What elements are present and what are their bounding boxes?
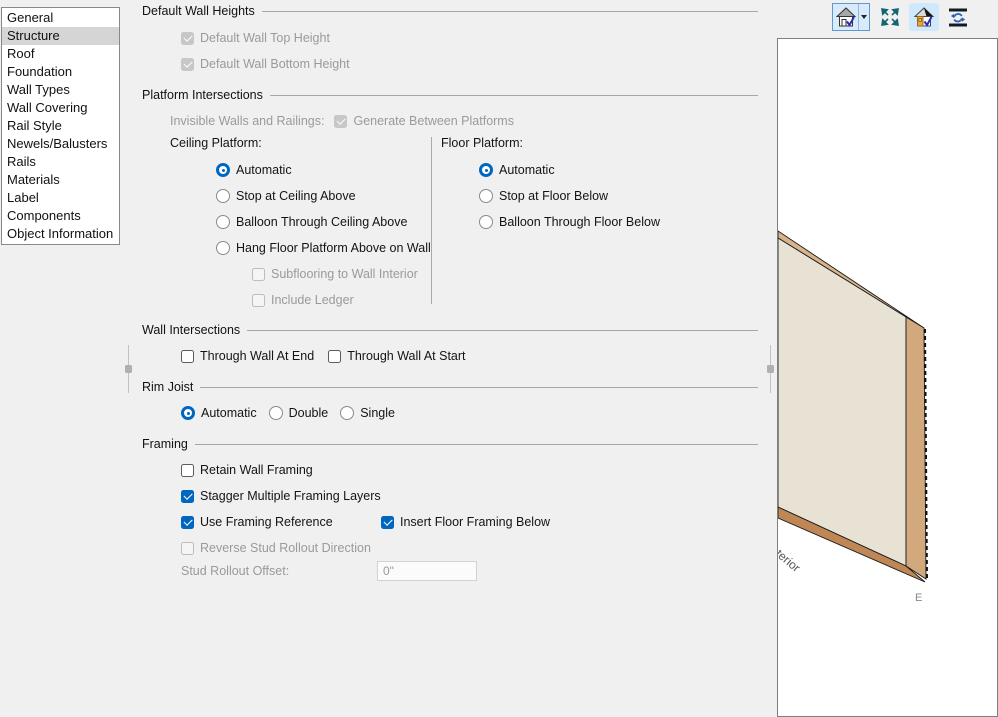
color-on-off-button[interactable] xyxy=(909,3,939,31)
section-title-platform-intersections: Platform Intersections xyxy=(142,88,263,102)
radio-rim-automatic[interactable] xyxy=(181,406,195,420)
dropdown-button[interactable] xyxy=(858,4,869,30)
checkbox-default-wall-top-height xyxy=(181,32,194,45)
auto-refresh-bars-icon xyxy=(946,5,970,29)
radio-rim-double[interactable] xyxy=(269,406,283,420)
preview-toolbar xyxy=(832,3,971,31)
radio-label: Automatic xyxy=(236,163,292,177)
radio-label: Stop at Ceiling Above xyxy=(236,189,356,203)
checkbox-label: Include Ledger xyxy=(271,293,354,307)
sidebar-item-foundation[interactable]: Foundation xyxy=(2,63,119,81)
radio-balloon-through-ceiling-above[interactable] xyxy=(216,215,230,229)
radio-label: Balloon Through Ceiling Above xyxy=(236,215,407,229)
checkbox-label: Insert Floor Framing Below xyxy=(400,515,550,529)
checkbox-use-framing-reference[interactable] xyxy=(181,516,194,529)
section-divider xyxy=(270,95,758,96)
section-title-wall-intersections: Wall Intersections xyxy=(142,323,240,337)
stud-rollout-offset-label: Stud Rollout Offset: xyxy=(181,564,289,578)
stud-rollout-offset-field xyxy=(377,561,477,581)
section-title-default-wall-heights: Default Wall Heights xyxy=(142,4,255,18)
checkbox-label: Reverse Stud Rollout Direction xyxy=(200,541,371,555)
radio-ceiling-automatic[interactable] xyxy=(216,163,230,177)
splitter-grip-icon[interactable] xyxy=(767,365,774,373)
radio-balloon-through-floor-below[interactable] xyxy=(479,215,493,229)
checkbox-label: Default Wall Top Height xyxy=(200,31,330,45)
sidebar-item-wall-covering[interactable]: Wall Covering xyxy=(2,99,119,117)
checkbox-label: Default Wall Bottom Height xyxy=(200,57,350,71)
auto-rebuild-button[interactable] xyxy=(944,4,971,30)
wall-specification-dialog: { "sidebar": { "selected_item": "Structu… xyxy=(0,0,998,717)
sidebar-item-components[interactable]: Components xyxy=(2,207,119,225)
sidebar-item-rail-style[interactable]: Rail Style xyxy=(2,117,119,135)
checkbox-subflooring-to-wall-interior xyxy=(252,268,265,281)
checkbox-label: Retain Wall Framing xyxy=(200,463,313,477)
sidebar-item-general[interactable]: General xyxy=(2,9,119,27)
checkbox-include-ledger xyxy=(252,294,265,307)
house-materials-check-icon xyxy=(913,6,935,28)
radio-label: Single xyxy=(360,406,395,420)
checkbox-stagger-multiple-framing-layers[interactable] xyxy=(181,490,194,503)
radio-label: Double xyxy=(289,406,329,420)
radio-label: Automatic xyxy=(499,163,555,177)
section-divider xyxy=(247,330,758,331)
checkbox-label: Generate Between Platforms xyxy=(353,114,514,128)
standard-view-split-button[interactable] xyxy=(832,3,870,31)
section-divider xyxy=(200,387,758,388)
sidebar-item-label[interactable]: Label xyxy=(2,189,119,207)
sidebar-item-roof[interactable]: Roof xyxy=(2,45,119,63)
wall-preview-drawing: terior E xyxy=(778,39,997,716)
interior-label: terior xyxy=(778,547,803,575)
checkbox-through-wall-at-end[interactable] xyxy=(181,350,194,363)
sidebar-item-wall-types[interactable]: Wall Types xyxy=(2,81,119,99)
section-title-framing: Framing xyxy=(142,437,188,451)
checkbox-insert-floor-framing-below[interactable] xyxy=(381,516,394,529)
radio-label: Hang Floor Platform Above on Wall xyxy=(236,241,431,255)
radio-label: Balloon Through Floor Below xyxy=(499,215,660,229)
structure-panel: Default Wall Heights Default Wall Top He… xyxy=(130,0,778,717)
checkbox-generate-between-platforms xyxy=(334,115,347,128)
invisible-walls-label: Invisible Walls and Railings: xyxy=(170,114,324,128)
checkbox-label: Stagger Multiple Framing Layers xyxy=(200,489,381,503)
checkbox-label: Use Framing Reference xyxy=(200,515,333,529)
wall-end-layer xyxy=(906,317,926,579)
sidebar-item-newels-balusters[interactable]: Newels/Balusters xyxy=(2,135,119,153)
wall-end-label: E xyxy=(915,592,922,604)
floor-platform-title: Floor Platform: xyxy=(441,136,523,150)
right-pane-splitter[interactable] xyxy=(767,345,774,393)
sidebar-item-object-information[interactable]: Object Information xyxy=(2,225,119,243)
checkbox-through-wall-at-start[interactable] xyxy=(328,350,341,363)
category-list: General Structure Roof Foundation Wall T… xyxy=(1,7,120,245)
checkbox-retain-wall-framing[interactable] xyxy=(181,464,194,477)
section-title-rim-joist: Rim Joist xyxy=(142,380,193,394)
house-check-icon xyxy=(833,4,858,30)
chevron-down-icon xyxy=(861,15,867,19)
sidebar-item-structure[interactable]: Structure xyxy=(2,27,119,45)
column-divider xyxy=(431,137,432,304)
checkbox-label: Subflooring to Wall Interior xyxy=(271,267,418,281)
checkbox-label: Through Wall At Start xyxy=(347,349,465,363)
sidebar-item-rails[interactable]: Rails xyxy=(2,153,119,171)
fill-window-button[interactable] xyxy=(877,4,903,30)
checkbox-reverse-stud-rollout-direction xyxy=(181,542,194,555)
section-divider xyxy=(195,444,758,445)
sidebar-item-materials[interactable]: Materials xyxy=(2,171,119,189)
section-divider xyxy=(262,11,758,12)
radio-floor-automatic[interactable] xyxy=(479,163,493,177)
checkbox-label: Through Wall At End xyxy=(200,349,314,363)
radio-rim-single[interactable] xyxy=(340,406,354,420)
radio-stop-at-ceiling-above[interactable] xyxy=(216,189,230,203)
ceiling-platform-title: Ceiling Platform: xyxy=(170,136,262,150)
radio-stop-at-floor-below[interactable] xyxy=(479,189,493,203)
checkbox-default-wall-bottom-height xyxy=(181,58,194,71)
radio-label: Stop at Floor Below xyxy=(499,189,608,203)
fill-window-arrows-icon xyxy=(878,5,902,29)
wall-3d-preview[interactable]: terior E xyxy=(777,38,998,717)
radio-label: Automatic xyxy=(201,406,257,420)
radio-hang-floor-platform-above[interactable] xyxy=(216,241,230,255)
